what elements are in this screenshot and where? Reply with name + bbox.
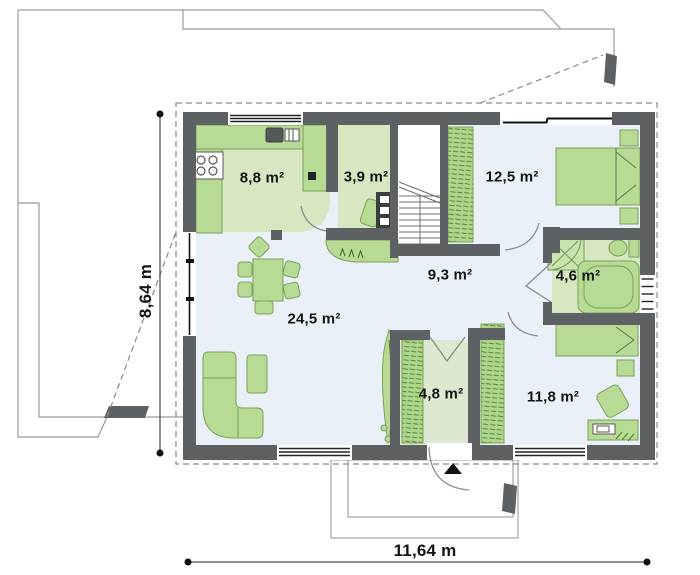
column: [308, 172, 316, 180]
bed-bottom: [556, 324, 638, 356]
side-table: [617, 360, 634, 376]
room-label-living-room: 24,5 m²: [287, 311, 340, 328]
wall: [543, 313, 640, 325]
plant-leaf: [381, 425, 387, 431]
wall: [390, 330, 430, 340]
dining-chair: [238, 282, 252, 297]
coffee-table: [247, 355, 267, 393]
floorplan-drawing: [0, 0, 700, 575]
bed-top: [556, 148, 640, 205]
room-label-bedroom-top: 12,5 m²: [485, 169, 538, 186]
wall: [640, 112, 655, 275]
room-label-kitchen: 8,8 m²: [240, 170, 285, 187]
nightstand-2: [620, 208, 638, 224]
wall: [303, 112, 500, 125]
dimension-dot: [185, 559, 192, 566]
wall: [440, 125, 448, 250]
laptop-icon: [593, 424, 615, 434]
outline-left: [18, 10, 107, 437]
toilet-icon: [609, 240, 627, 256]
toilet-tank: [629, 239, 639, 257]
dish-rack-icon: [285, 129, 299, 141]
wall: [390, 330, 400, 445]
wall: [472, 445, 513, 460]
wall: [271, 230, 282, 240]
wall-stub-outline: [104, 406, 149, 418]
stove: [193, 152, 223, 179]
dimension-dot: [157, 450, 164, 457]
porch-pillar: [502, 483, 517, 514]
window-mullion: [186, 297, 194, 301]
dining-chair: [255, 301, 273, 314]
dining-chair: [283, 282, 301, 300]
roof-diagonal: [107, 232, 176, 417]
wall: [183, 445, 277, 460]
room-label-utility: 3,9 m²: [344, 169, 389, 186]
wall: [326, 125, 338, 192]
nightstand-1: [620, 130, 638, 146]
wall: [545, 228, 640, 240]
wall: [468, 328, 480, 445]
outline-top: [18, 10, 561, 29]
room-label-vestibule: 4,8 m²: [419, 386, 464, 403]
room-label-bathroom: 4,6 m²: [556, 268, 601, 285]
dining-chair: [238, 262, 252, 277]
room-label-bedroom-bottom: 11,8 m²: [527, 389, 579, 406]
chimney-icon: [604, 53, 617, 85]
floorplan-canvas: 8,8 m² 3,9 m² 12,5 m² 9,3 m² 4,6 m² 24,5…: [0, 0, 700, 575]
room-label-hall: 9,3 m²: [428, 267, 473, 284]
wall: [352, 445, 427, 460]
dimension-dot: [157, 111, 164, 118]
wall: [640, 313, 655, 460]
dining-chair: [283, 260, 301, 278]
outline-garage: [18, 203, 183, 417]
dimension-dot: [644, 559, 651, 566]
window-mullion: [186, 259, 194, 263]
dimension-label-height: 8,64 m: [136, 264, 156, 318]
wardrobe-bedroom-top: [448, 127, 473, 242]
dimension-label-width: 11,64 m: [394, 541, 457, 561]
wall: [183, 336, 196, 460]
wardrobe-bedroom-bottom: [481, 324, 504, 443]
kitchen-cabinet: [303, 125, 330, 191]
wall: [543, 253, 552, 263]
porch-inner: [348, 460, 513, 517]
wall: [183, 112, 196, 232]
wall: [390, 125, 398, 258]
front-door-opening: [427, 443, 472, 460]
dining-table: [253, 259, 283, 301]
kitchen-sink-icon: [266, 128, 283, 142]
wall: [326, 228, 397, 240]
roof-diagonal: [480, 55, 603, 103]
porch: [331, 460, 518, 538]
wall: [397, 244, 500, 256]
